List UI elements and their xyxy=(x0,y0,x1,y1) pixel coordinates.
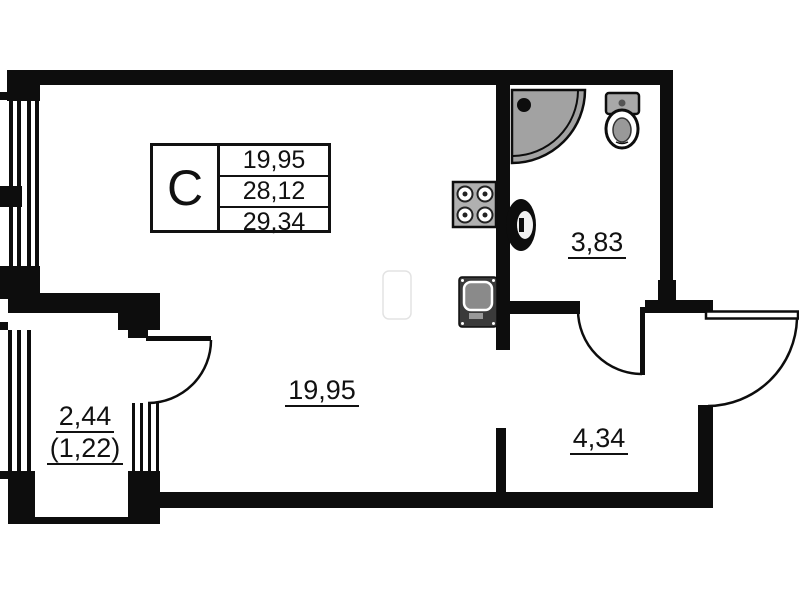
apartment-area-rows: 19,95 28,12 29,34 xyxy=(220,146,328,230)
window-living-room-icon xyxy=(9,101,39,266)
kitchen-sink-icon xyxy=(459,277,497,327)
balcony-reduced-area-label: (1,22) xyxy=(33,434,137,465)
main-room-area-label: 19,95 xyxy=(277,376,367,407)
toilet-icon xyxy=(606,93,639,148)
cooktop-icon xyxy=(453,182,496,227)
watermark xyxy=(383,271,411,319)
legend-total-area: 29,34 xyxy=(220,208,328,237)
sink-icon xyxy=(506,199,536,251)
balcony-area-label: 2,44 xyxy=(44,402,126,433)
door-bathroom xyxy=(578,307,645,375)
door-entrance xyxy=(706,312,798,407)
window-balcony-left-icon xyxy=(8,330,31,472)
legend-living-area: 19,95 xyxy=(220,146,328,177)
floor-plan-drawing xyxy=(0,0,799,600)
apartment-legend-table: С 19,95 28,12 29,34 xyxy=(150,143,331,233)
hallway-area-label: 4,34 xyxy=(559,424,639,455)
shower-icon xyxy=(512,90,585,163)
bathroom-area-label: 3,83 xyxy=(557,228,637,259)
apartment-type-label: С xyxy=(153,146,220,230)
door-balcony xyxy=(146,336,211,403)
legend-apartment-area: 28,12 xyxy=(220,177,328,208)
floor-plan: С 19,95 28,12 29,34 19,95 3,83 4,34 2,44… xyxy=(0,0,799,600)
